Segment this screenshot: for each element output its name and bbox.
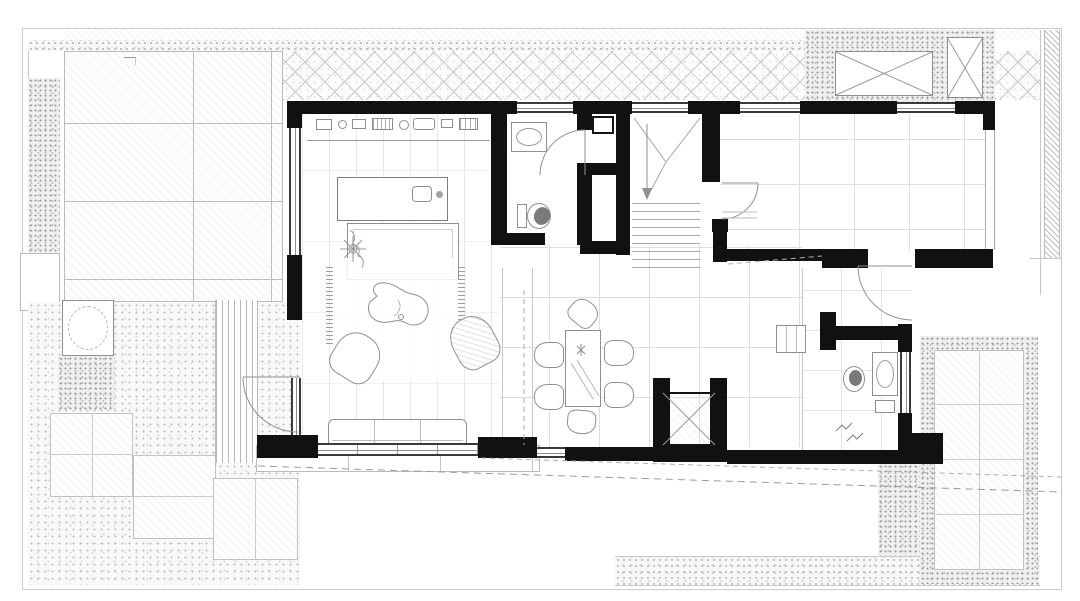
kitchen-appliance-mark [352,119,366,129]
wall-top-5 [955,101,995,114]
rear-bathroom-partition-line [802,268,803,450]
powder-room-sink-bowl [516,128,542,146]
shaft-stub-wall [577,163,616,175]
bathroom-wall-right-bottom [898,413,912,464]
gravel-wedge [878,464,920,556]
stepping-paver-3 [213,478,298,560]
stair-wall-right-column [702,114,720,182]
powder-room-wall-right-bottom [577,175,592,245]
stair-wall-bottom-stub [580,241,630,254]
bathroom-fixture-mark [875,400,895,413]
kitchen-appliance-mark [399,120,409,130]
wall-left-corner [287,101,302,128]
boundary-tick-right [1030,258,1062,259]
kitchen-appliance-mark [316,119,332,130]
window-sliding-bottom [318,443,478,456]
window-left [289,128,301,255]
dining-table [565,330,601,407]
stepping-paver-2 [133,455,216,539]
rug-fringe-left [326,266,333,344]
tiled-patio [64,51,283,302]
elevator-cab [662,392,716,446]
wall-top-2 [573,101,632,114]
floor-joint-line-1 [502,268,503,447]
window-left-lower [291,378,301,435]
island-faucet [436,191,443,198]
window-top-2 [632,102,688,113]
kitchen-sink-mark [413,118,435,130]
tree-canopy-circle [68,306,108,350]
timber-deck-strips [215,300,258,463]
hall-wall-horizontal-2 [822,249,868,268]
washer-cabinet [776,325,806,353]
kitchen-appliance-mark [372,118,393,130]
elevator-wall-bottom [653,446,727,462]
pebble-strip-top [28,40,805,51]
right-room-floor [720,114,987,250]
wall-bottom-left-corner [257,435,318,458]
wall-bottom-2 [565,447,653,461]
stepping-paver-1 [50,413,133,497]
island-sink [412,186,432,202]
rear-yard-pavers [934,350,1024,570]
dining-chair-left-1 [534,342,564,368]
pebble-patch [58,356,115,410]
wall-top-4 [800,101,897,114]
skylight-grate-large [835,51,933,96]
kitchen-appliance-mark [441,119,453,128]
window-bottom-small [537,447,565,458]
stair-wall-left [616,114,630,255]
bathroom-toilet-seat [849,370,862,386]
powder-room-wall-bottom-stub [491,233,545,245]
dining-chair-left-2 [534,384,564,410]
kitchen-appliance-mark [459,118,478,130]
wall-top-3 [688,101,740,114]
window-top-1 [517,102,573,113]
powder-room-toilet-tank [517,204,527,228]
floor-plan-canvas [0,0,1080,601]
wall-top-return [983,114,995,130]
window-top-3 [740,102,800,113]
hall-wall-horizontal-1 [713,249,822,261]
patio-survey-marker [124,57,136,65]
bathroom-window-right [900,352,911,413]
kitchen-appliance-mark [338,120,347,129]
bathroom-wall-right-top [898,324,912,352]
bathroom-t-stub [820,312,836,350]
powder-room-wall-right-top [577,114,592,130]
floor-joint-line-2 [532,268,533,447]
sofa-back-line [332,440,463,441]
dining-chair-right-2 [604,382,634,408]
powder-room-wall-left [491,114,507,245]
utility-niche [592,116,614,134]
right-room-glass-wall [985,114,995,250]
wall-top-1 [287,101,517,114]
dining-chair-right-1 [604,340,634,366]
wall-bottom-1 [478,437,537,458]
window-top-4 [897,102,955,113]
boundary-line-right [1040,30,1041,295]
skylight-grate-small [947,37,983,98]
right-room-bottom-wall [915,249,993,268]
stair-treads [632,198,700,268]
hall-door-stub [712,219,728,232]
wall-left-mid [287,255,302,320]
bathroom-vanity-bowl [876,360,894,388]
boundary-wall-hatched [1044,30,1060,258]
